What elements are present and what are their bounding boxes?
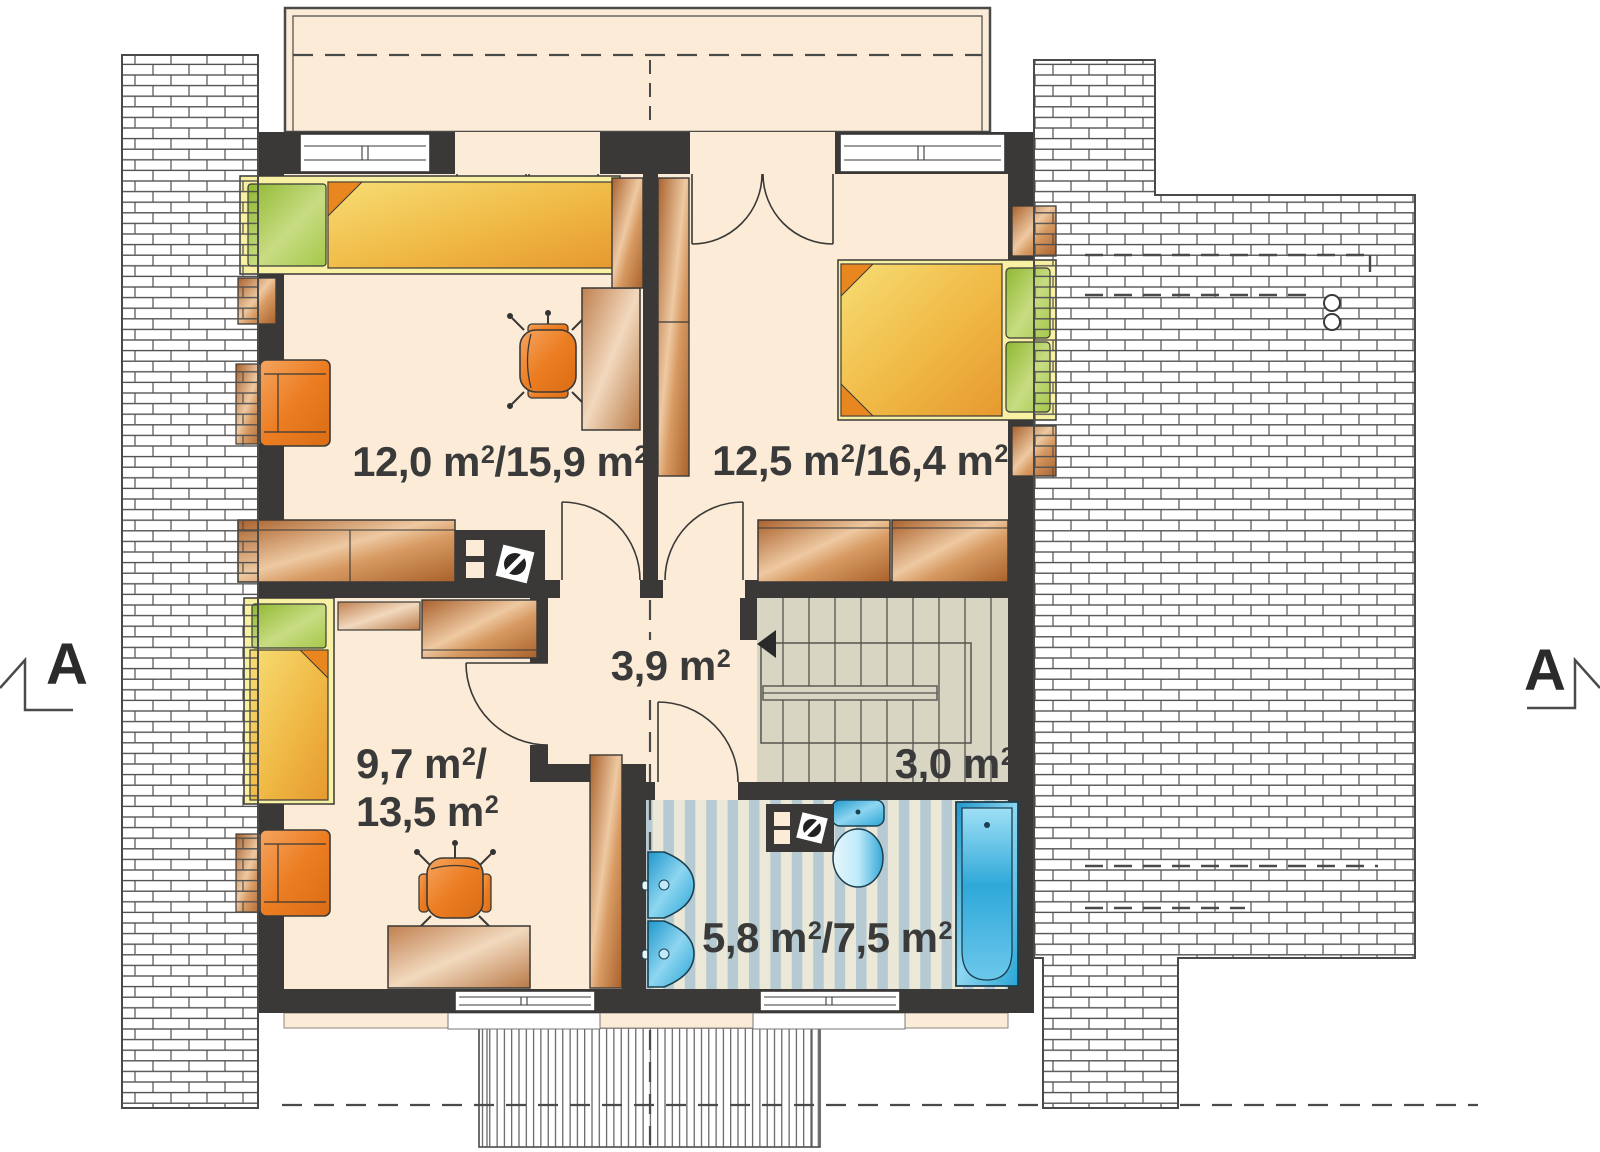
- wardrobe-long-upper: [238, 520, 455, 582]
- floor-plan-drawing: [0, 0, 1600, 1152]
- window-bottom-left: [455, 991, 595, 1011]
- roof-vent-icon: [1324, 295, 1340, 311]
- right-roof-hatch: [1034, 60, 1415, 1108]
- left-roof-hatch: [122, 55, 258, 1108]
- section-marker-a-right: A: [1505, 642, 1585, 700]
- wardrobes-over-stairs: [758, 520, 1008, 582]
- dresser: [338, 602, 420, 630]
- area-label-bedroom-upper-right: 12,5 m2/16,4 m2: [690, 438, 1030, 490]
- wardrobe-side: [590, 755, 622, 988]
- area-label-bathroom: 5,8 m2/7,5 m2: [697, 915, 957, 967]
- wardrobe-partition-right: [658, 178, 689, 476]
- wardrobe-partition-left: [612, 178, 643, 288]
- window-top-right: [840, 134, 1005, 172]
- section-marker-a-left: A: [27, 636, 107, 694]
- area-label-staircase: 3,0 m2: [862, 741, 1047, 793]
- area-label-bedroom-upper-left: 12,0 m2/15,9 m2: [320, 439, 680, 491]
- bed-single-upper: [240, 176, 620, 274]
- bathroom-flue: [766, 804, 834, 852]
- roof-vent-icon: [1324, 314, 1340, 330]
- area-label-bedroom-lower-left-line1: 9,7 m2/: [356, 740, 487, 794]
- area-label-hall: 3,9 m2: [583, 643, 758, 695]
- floor-plan: 12,0 m2/15,9 m2 12,5 m2/16,4 m2 3,9 m2 3…: [0, 0, 1600, 1152]
- chimney-flue: [455, 530, 545, 598]
- bathtub: [956, 802, 1018, 986]
- area-label-bedroom-lower-left-line2: 13,5 m2: [356, 788, 498, 842]
- toilet: [832, 800, 884, 887]
- balcony: [285, 8, 990, 132]
- wardrobe-lower: [422, 600, 537, 658]
- window-bottom-right: [760, 991, 900, 1011]
- desk-lower: [388, 926, 530, 988]
- desk-upper: [582, 288, 640, 430]
- window-top-left: [300, 134, 430, 172]
- bed-double: [838, 260, 1056, 420]
